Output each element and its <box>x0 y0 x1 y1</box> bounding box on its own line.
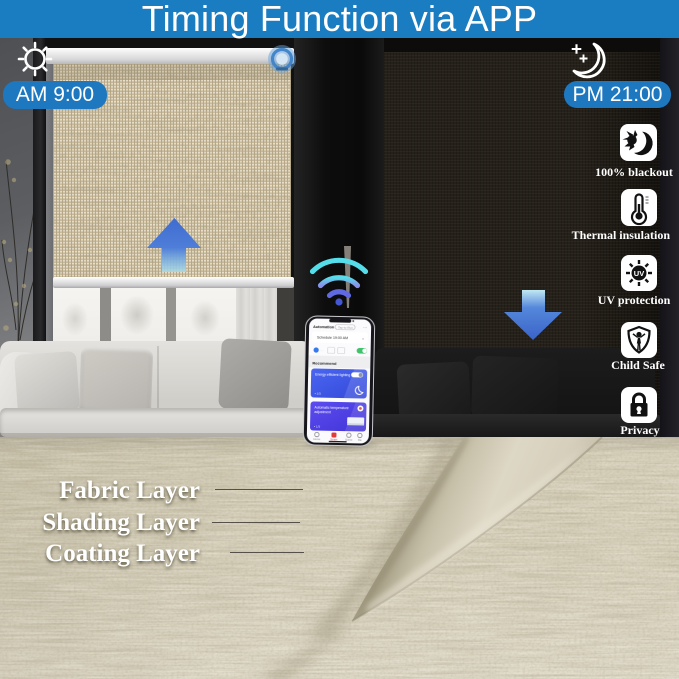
svg-text:Tap-to-Run: Tap-to-Run <box>338 325 353 329</box>
svg-text:UV: UV <box>634 269 644 278</box>
svg-text:Home: Home <box>313 437 321 441</box>
svg-text:Me: Me <box>358 438 362 442</box>
svg-text:Recommend: Recommend <box>312 360 337 366</box>
svg-text:···: ··· <box>363 325 367 330</box>
svg-text:Automation: Automation <box>313 325 335 329</box>
svg-text:▪ 1/3: ▪ 1/3 <box>315 391 321 395</box>
svg-text:▪ 1/3: ▪ 1/3 <box>314 424 320 428</box>
svg-text:···: ··· <box>321 349 324 353</box>
svg-text:Schedule 19:00 AM: Schedule 19:00 AM <box>317 336 348 341</box>
svg-text:Scene: Scene <box>345 438 353 442</box>
svg-text:adjustment: adjustment <box>314 410 331 414</box>
svg-text:Energy-efficient lighting: Energy-efficient lighting <box>315 372 350 377</box>
